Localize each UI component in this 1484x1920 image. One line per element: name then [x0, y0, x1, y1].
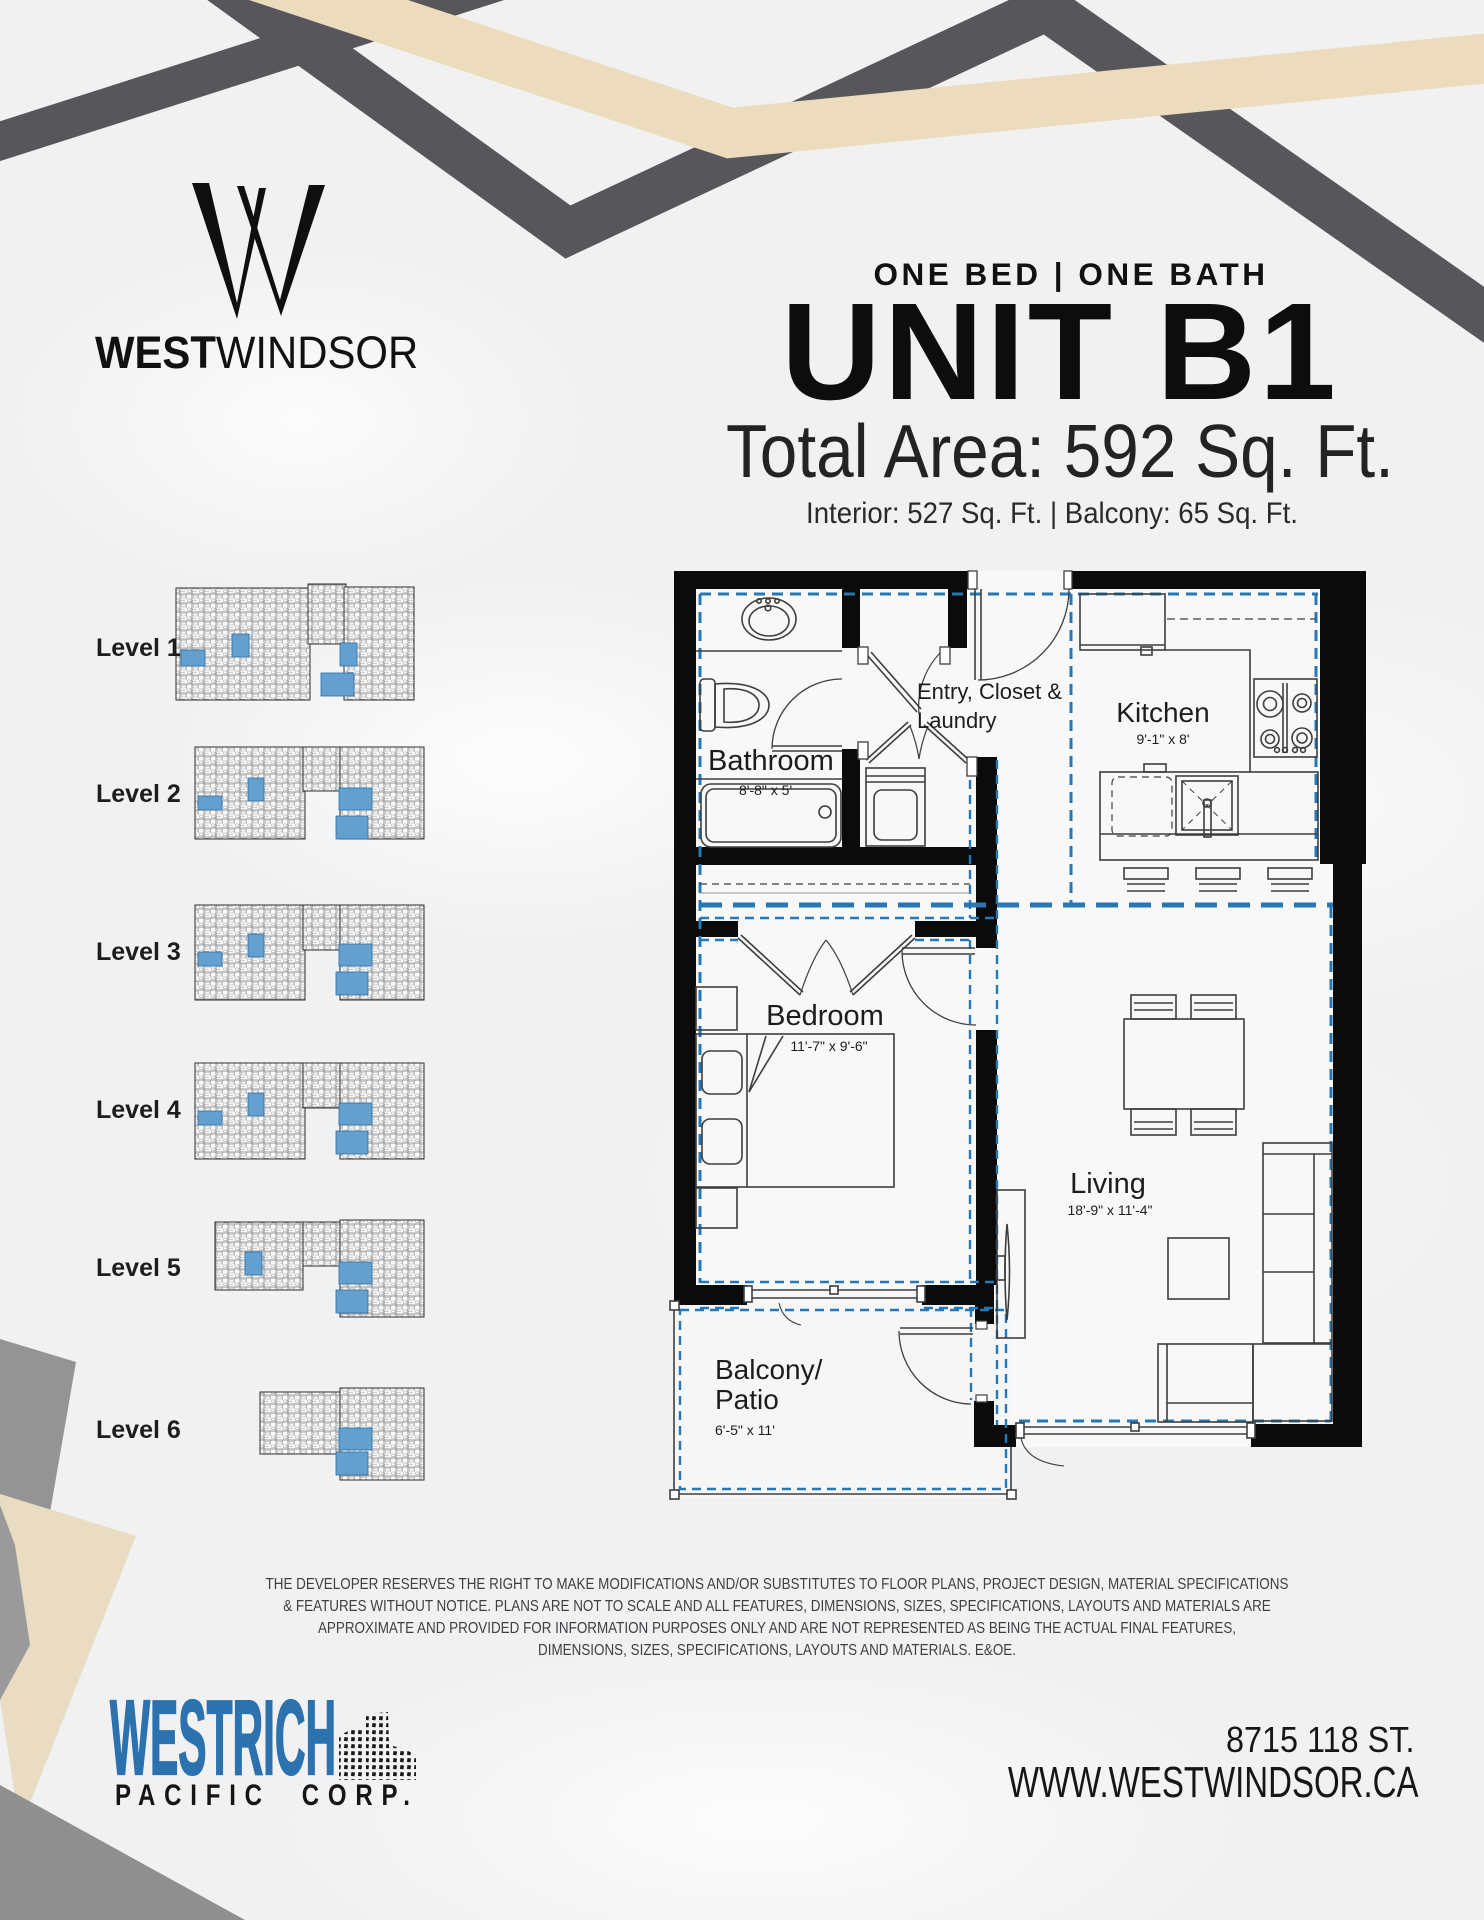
svg-text:Laundry: Laundry — [917, 708, 997, 733]
svg-text:8'-8" x 5': 8'-8" x 5' — [739, 782, 792, 798]
svg-text:Bedroom: Bedroom — [766, 1000, 884, 1032]
svg-text:18'-9" x 11'-4": 18'-9" x 11'-4" — [1067, 1202, 1152, 1218]
svg-text:6'-5" x 11': 6'-5" x 11' — [715, 1422, 775, 1438]
svg-text:Kitchen: Kitchen — [1116, 697, 1209, 728]
svg-text:Patio: Patio — [715, 1384, 779, 1415]
svg-text:9'-1" x 8': 9'-1" x 8' — [1136, 731, 1189, 747]
svg-text:Living: Living — [1070, 1168, 1146, 1200]
svg-text:Entry, Closet &: Entry, Closet & — [917, 679, 1062, 704]
svg-text:11'-7" x 9'-6": 11'-7" x 9'-6" — [790, 1038, 867, 1054]
svg-text:Balcony/: Balcony/ — [715, 1354, 823, 1385]
svg-text:Bathroom: Bathroom — [708, 745, 834, 777]
